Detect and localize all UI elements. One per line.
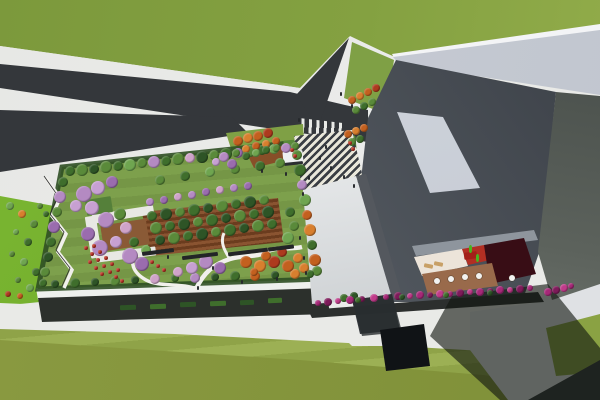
garden-trees — [0, 0, 600, 400]
magenta-flower-row — [0, 0, 600, 400]
podium-roof — [0, 0, 600, 400]
northeast-lawn-patch — [0, 0, 600, 400]
cafe-tables — [0, 0, 600, 400]
tower-roof — [0, 0, 600, 400]
building-pillar — [0, 0, 600, 400]
road-branch-west — [0, 0, 600, 400]
garden-walkway-west — [133, 254, 196, 289]
garden-walkway-main — [196, 247, 302, 289]
lawn-north — [0, 0, 600, 400]
lounge-chairs — [0, 0, 600, 400]
plaza-trees — [0, 0, 600, 400]
terrace-edge-beam — [0, 0, 600, 400]
road-main — [0, 0, 600, 400]
garden-building-fascia — [0, 0, 600, 400]
facade-green-wall — [0, 0, 600, 400]
garden-walkway-branch — [222, 233, 230, 259]
paths-overlay — [0, 0, 600, 400]
crosswalk — [0, 0, 600, 400]
lawn-mowed-band — [0, 0, 600, 400]
garden-pavilion — [0, 0, 600, 400]
garden-building-facade — [0, 0, 600, 400]
tower-facade-panel — [0, 0, 600, 400]
road-southeast-corner — [0, 0, 600, 400]
plaza-paving — [0, 0, 600, 400]
landscaped-slope — [0, 0, 600, 400]
terrace-floor-red — [0, 0, 600, 400]
red-flower-bed — [0, 0, 600, 400]
road-branch-north — [0, 0, 600, 400]
entrance-lawn-patch — [0, 0, 600, 400]
tower-roof-edge — [0, 0, 600, 400]
sidewalk-south — [0, 0, 600, 400]
slope-ramp — [46, 178, 72, 288]
garden-benches — [0, 0, 600, 400]
rooftop-garden — [0, 0, 600, 400]
tower-cast-shadow — [0, 0, 600, 400]
pedestrians — [0, 0, 600, 400]
grand-entry-stairs — [0, 0, 600, 400]
tower-east-face — [0, 0, 600, 400]
planter-strip — [0, 0, 600, 400]
garden-hedge-border — [38, 142, 322, 289]
sidewalk-under-tower — [0, 0, 600, 400]
garden-pergola — [0, 0, 600, 400]
terrace-floor-cream — [0, 0, 600, 400]
ramp-railing — [44, 176, 70, 286]
lawn-patch-southeast — [0, 0, 600, 400]
green-topiary-figures — [0, 0, 600, 400]
terrace-floor-maroon — [0, 0, 600, 400]
tower-west-face — [0, 0, 600, 400]
terrace-wood-deck — [0, 0, 600, 400]
slope-shrubs — [0, 0, 600, 400]
entrance-canopy — [0, 0, 600, 400]
terrace-red-wall — [0, 0, 600, 400]
podium-tower-gap — [0, 0, 600, 400]
lawn-foreground — [0, 0, 600, 400]
podium-shadow — [0, 0, 600, 400]
paving-southeast — [0, 0, 600, 400]
aerial-architectural-render: Aerial 3D architectural rendering: rooft… — [0, 0, 600, 400]
stair-planters — [0, 0, 600, 400]
garden-building-east-edge — [0, 0, 600, 400]
podium-column — [0, 0, 600, 400]
wooden-amphitheater — [0, 0, 600, 400]
